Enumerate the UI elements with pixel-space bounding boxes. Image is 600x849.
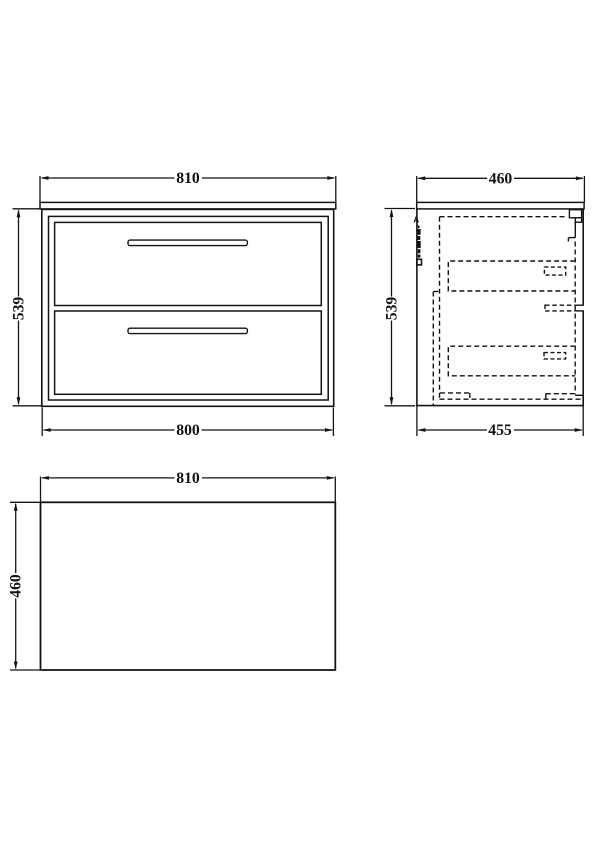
svg-text:539: 539 [10, 297, 27, 321]
svg-text:455: 455 [488, 422, 512, 439]
svg-text:810: 810 [176, 170, 200, 187]
svg-text:460: 460 [8, 574, 25, 598]
svg-text:460: 460 [489, 170, 513, 187]
svg-text:800: 800 [176, 422, 200, 439]
svg-text:A: A [413, 215, 419, 224]
svg-text:539: 539 [383, 297, 400, 321]
svg-text:810: 810 [176, 470, 200, 487]
